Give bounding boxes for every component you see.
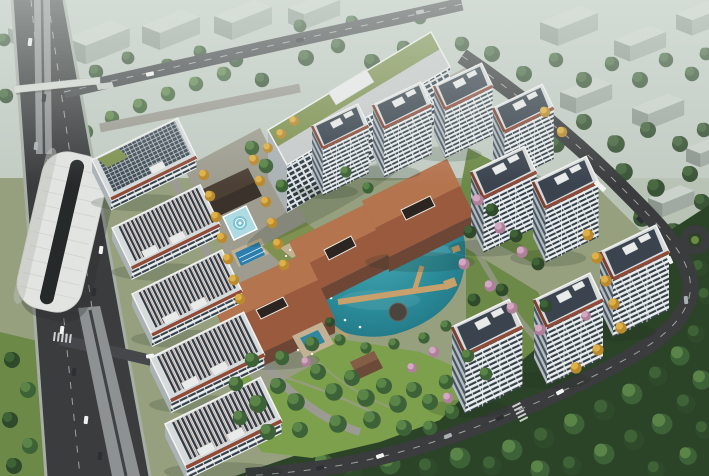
scene-svg: Aerial daytime rendering of a residentia…	[0, 0, 709, 476]
atmospheric-haze	[0, 0, 709, 185]
lakeside-deck	[389, 303, 407, 321]
aerial-rendering: Aerial daytime rendering of a residentia…	[0, 0, 709, 476]
roundabout-island	[691, 236, 699, 244]
car	[684, 296, 689, 304]
